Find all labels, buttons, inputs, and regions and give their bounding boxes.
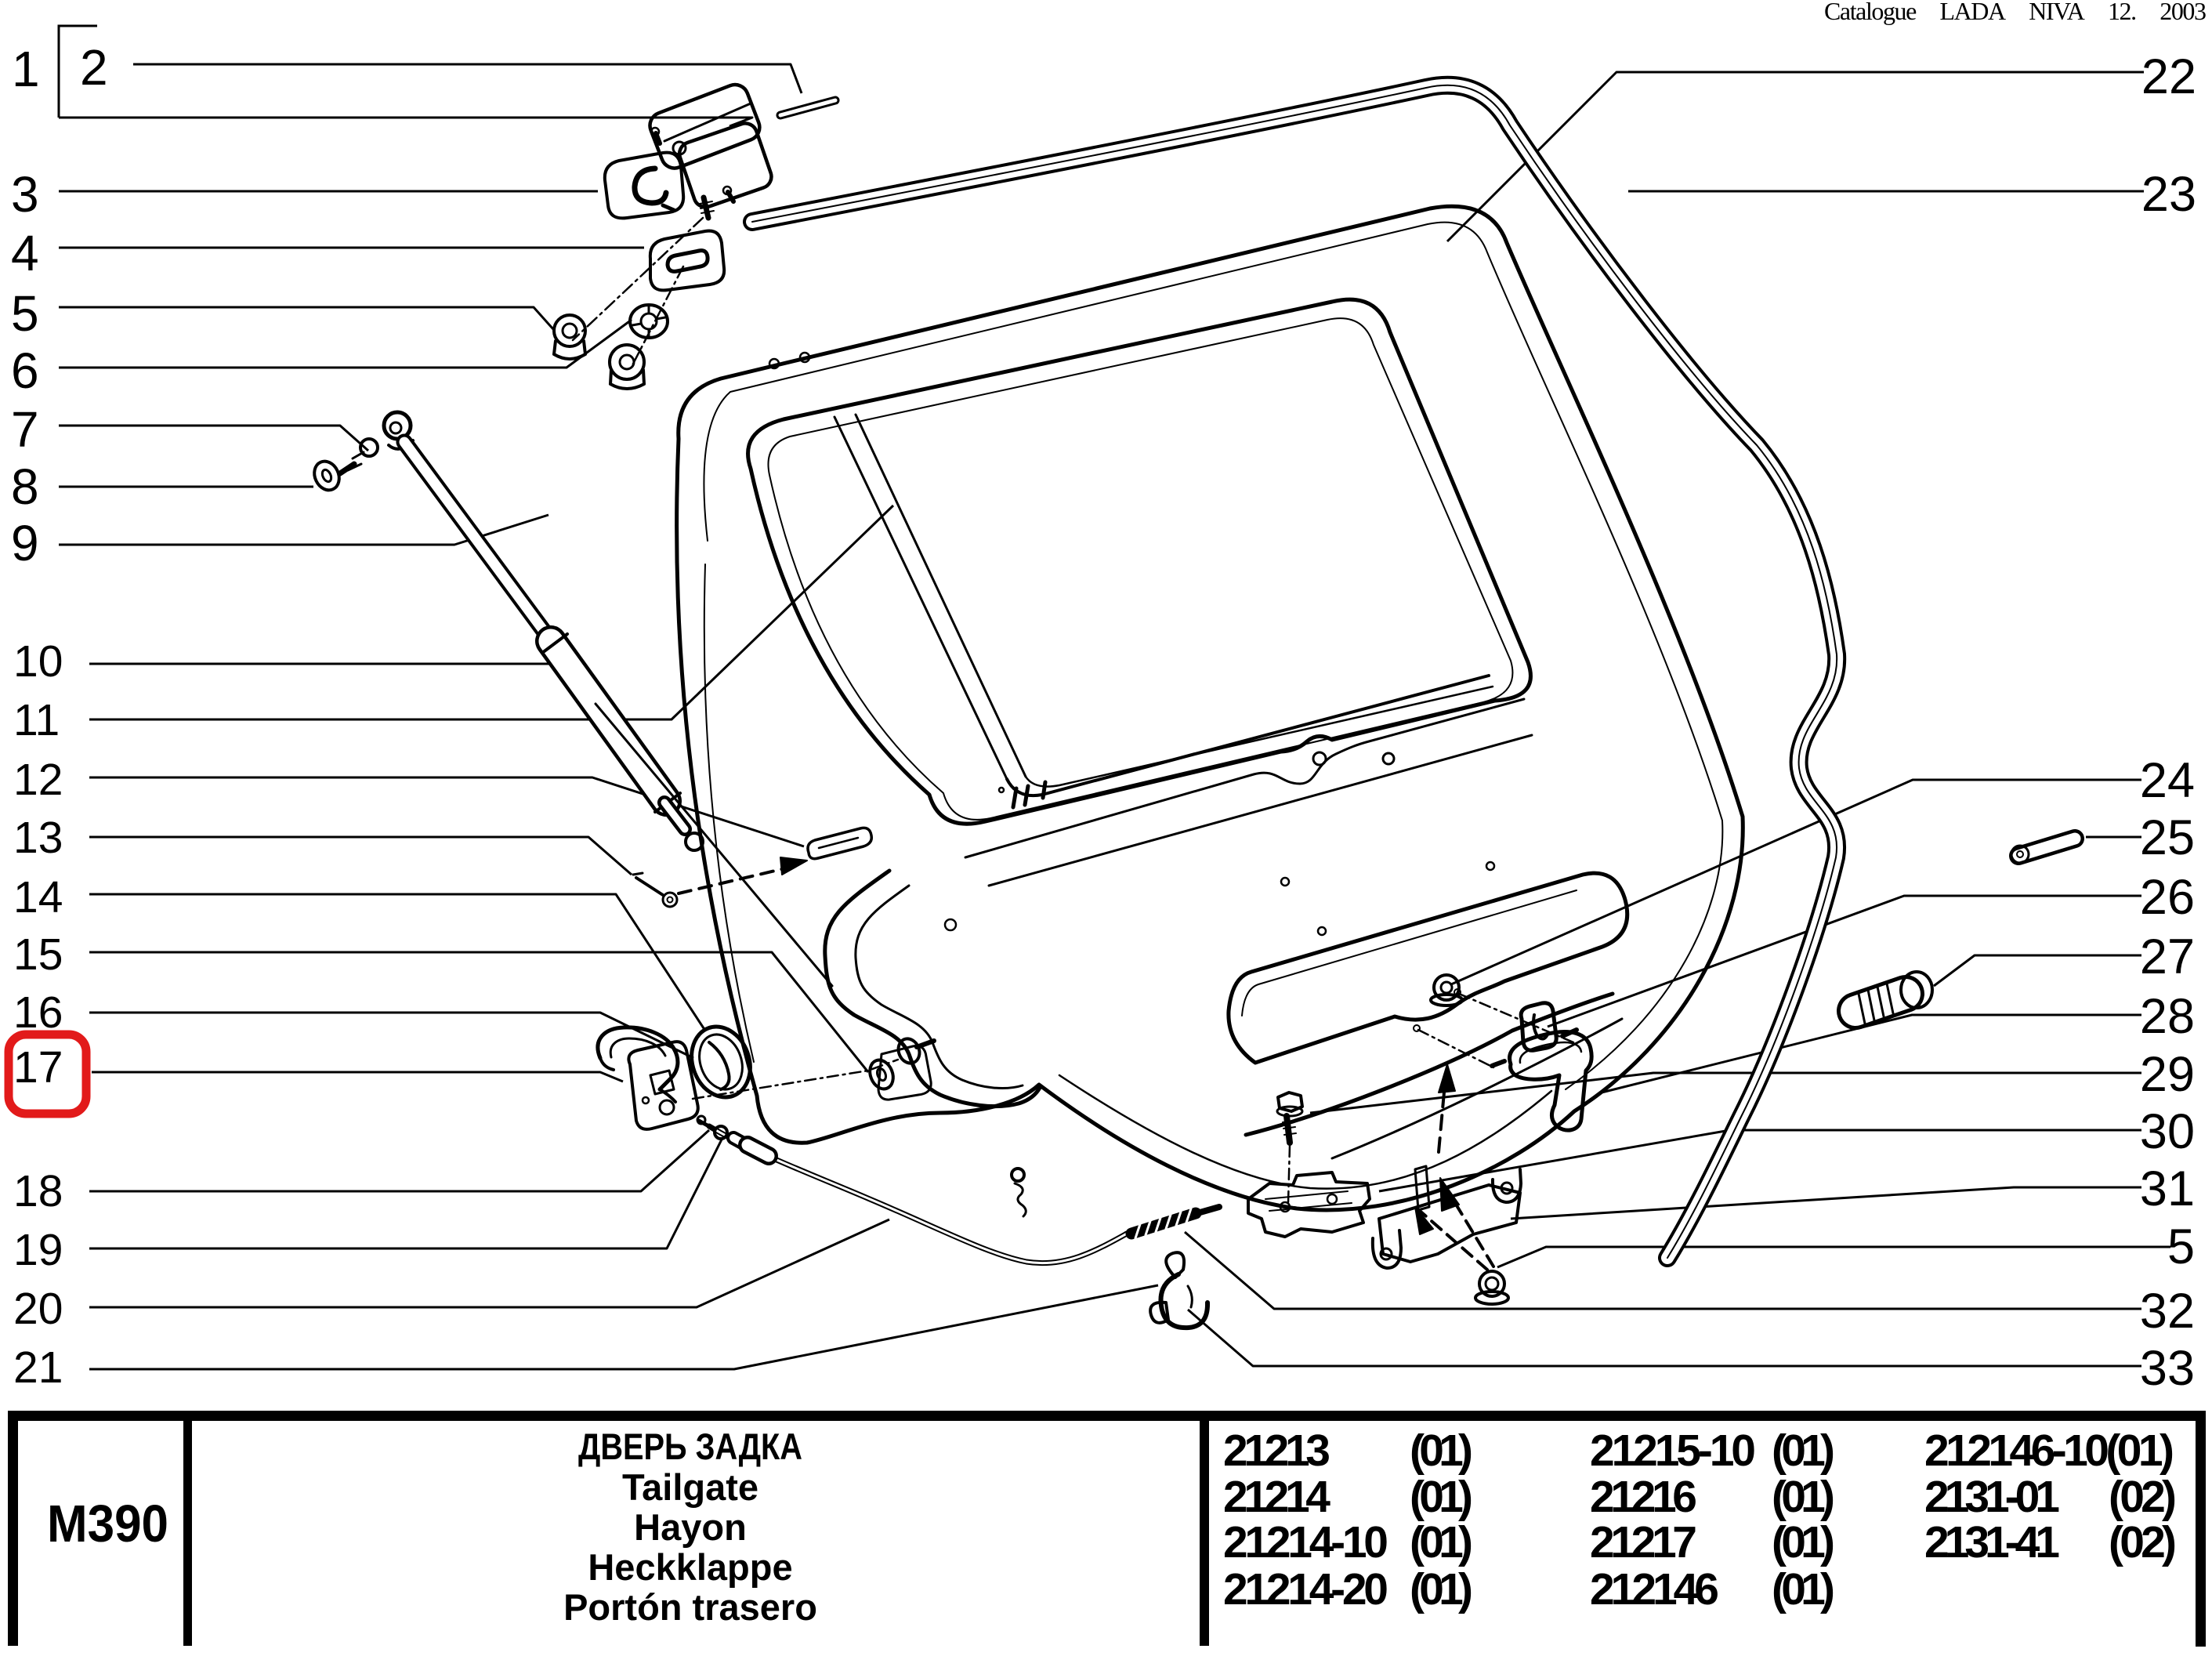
svg-text:M390: M390: [47, 1495, 168, 1553]
svg-text:5: 5: [11, 285, 39, 342]
svg-text:2131-01: 2131-01: [1924, 1472, 2060, 1522]
svg-text:17: 17: [13, 1042, 63, 1093]
svg-text:(01): (01): [1772, 1426, 1835, 1476]
svg-text:30: 30: [2140, 1104, 2195, 1159]
svg-text:5: 5: [2167, 1219, 2195, 1274]
svg-text:21217: 21217: [1590, 1517, 1697, 1567]
svg-text:(01): (01): [1772, 1517, 1835, 1567]
svg-text:Portón trasero: Portón trasero: [563, 1586, 817, 1628]
svg-text:8: 8: [11, 458, 39, 515]
svg-text:10: 10: [13, 636, 63, 687]
svg-text:11: 11: [13, 695, 60, 745]
svg-text:Catalogue LADA NIVA 12. 2003: Catalogue LADA NIVA 12. 2003: [1824, 0, 2207, 25]
svg-text:21215-10: 21215-10: [1590, 1426, 1756, 1476]
svg-text:13: 13: [13, 813, 63, 863]
svg-text:9: 9: [11, 515, 39, 571]
svg-text:7: 7: [11, 401, 39, 458]
svg-text:2131-41: 2131-41: [1924, 1517, 2060, 1567]
svg-text:24: 24: [2140, 753, 2195, 808]
svg-text:3: 3: [11, 166, 39, 223]
svg-text:(01): (01): [1410, 1426, 1473, 1476]
svg-text:32: 32: [2140, 1284, 2195, 1339]
svg-text:15: 15: [13, 929, 63, 980]
svg-text:Heckklappe: Heckklappe: [588, 1546, 792, 1588]
svg-text:212146-10(01): 212146-10(01): [1924, 1426, 2174, 1476]
svg-text:21214-10: 21214-10: [1223, 1517, 1388, 1567]
svg-text:4: 4: [11, 225, 39, 281]
svg-text:12: 12: [13, 755, 63, 805]
svg-text:16: 16: [13, 987, 63, 1038]
svg-text:21216: 21216: [1590, 1472, 1697, 1522]
svg-text:31: 31: [2140, 1161, 2195, 1216]
svg-text:(02): (02): [2109, 1472, 2177, 1522]
svg-text:20: 20: [13, 1284, 63, 1334]
svg-text:21: 21: [13, 1343, 63, 1393]
svg-text:Tailgate: Tailgate: [622, 1466, 758, 1508]
svg-text:(01): (01): [1410, 1472, 1473, 1522]
svg-text:(01): (01): [1410, 1517, 1473, 1567]
svg-text:14: 14: [13, 872, 63, 922]
svg-text:29: 29: [2140, 1047, 2195, 1102]
svg-text:28: 28: [2140, 989, 2195, 1044]
svg-text:Hayon: Hayon: [634, 1506, 747, 1548]
svg-text:26: 26: [2140, 870, 2195, 925]
svg-text:212146: 212146: [1590, 1564, 1719, 1614]
svg-text:21214: 21214: [1223, 1472, 1330, 1522]
svg-text:1: 1: [12, 41, 40, 97]
svg-text:(02): (02): [2109, 1517, 2177, 1567]
svg-text:(01): (01): [1410, 1564, 1473, 1614]
svg-text:33: 33: [2140, 1341, 2195, 1396]
svg-text:22: 22: [2141, 49, 2196, 104]
svg-text:27: 27: [2140, 929, 2195, 984]
svg-text:19: 19: [13, 1225, 63, 1275]
svg-text:25: 25: [2140, 810, 2195, 865]
svg-text:18: 18: [13, 1166, 63, 1216]
svg-text:6: 6: [11, 342, 39, 399]
svg-text:(01): (01): [1772, 1564, 1835, 1614]
svg-text:ДВЕРЬ ЗАДКА: ДВЕРЬ ЗАДКА: [578, 1426, 802, 1467]
svg-text:(01): (01): [1772, 1472, 1835, 1522]
svg-text:21214-20: 21214-20: [1223, 1564, 1388, 1614]
svg-text:23: 23: [2141, 167, 2196, 222]
svg-text:2: 2: [80, 39, 108, 96]
svg-text:21213: 21213: [1223, 1426, 1330, 1476]
